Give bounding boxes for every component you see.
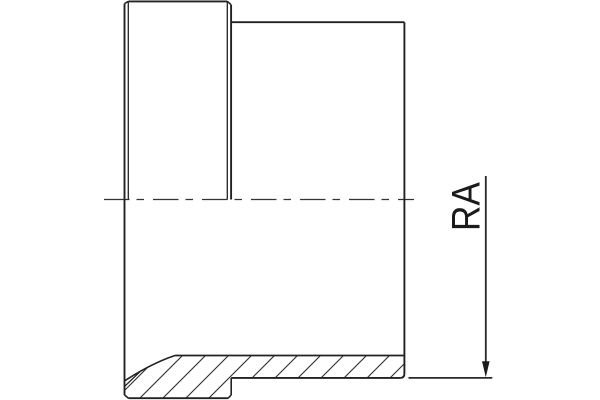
svg-text:RA: RA (443, 181, 488, 231)
